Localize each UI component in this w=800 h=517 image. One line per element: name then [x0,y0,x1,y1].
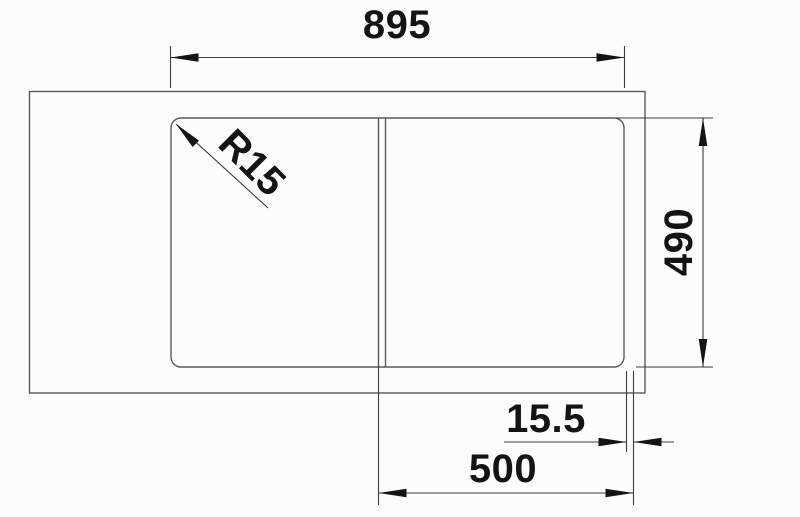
dimension-label-corner-radius: R15 [210,121,294,205]
sink-outer-outline [30,92,646,394]
dimension-label-top-width: 895 [363,3,431,47]
sink-technical-drawing: 895 R15 490 15.5 [0,0,800,517]
arrowhead-right-icon [606,489,634,498]
dimension-label-edge-offset: 15.5 [506,397,586,441]
arrowhead-right-icon [599,438,627,447]
arrowhead-diagonal-icon [176,124,199,147]
dimension-label-right-depth: 490 [657,208,701,276]
arrowhead-left-icon [634,438,662,447]
arrowhead-left-icon [171,53,199,62]
arrowhead-right-icon [597,53,625,62]
arrowhead-down-icon [699,339,708,367]
arrowhead-up-icon [699,118,708,146]
dimension-label-bowl-width: 500 [469,447,537,491]
dimension-corner-radius: R15 [176,121,294,208]
drawing-canvas: 895 R15 490 15.5 [0,0,800,517]
dimension-top-width: 895 [171,3,625,88]
arrowhead-left-icon [379,489,407,498]
dimension-right-depth: 490 [616,118,713,367]
